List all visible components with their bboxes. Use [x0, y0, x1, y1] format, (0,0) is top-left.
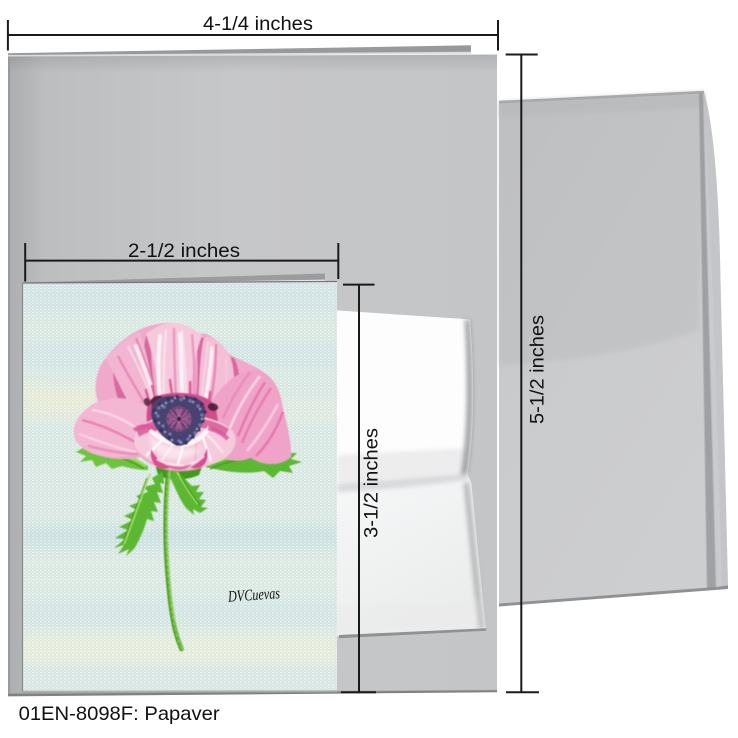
svg-text:01EN-8098F: Papaver: 01EN-8098F: Papaver	[19, 703, 221, 725]
svg-text:5-1/2 inches: 5-1/2 inches	[528, 315, 549, 424]
svg-text:4-1/4 inches: 4-1/4 inches	[203, 14, 313, 35]
svg-text:2-1/2 inches: 2-1/2 inches	[128, 241, 240, 262]
svg-text:3-1/2 inches: 3-1/2 inches	[362, 428, 383, 538]
